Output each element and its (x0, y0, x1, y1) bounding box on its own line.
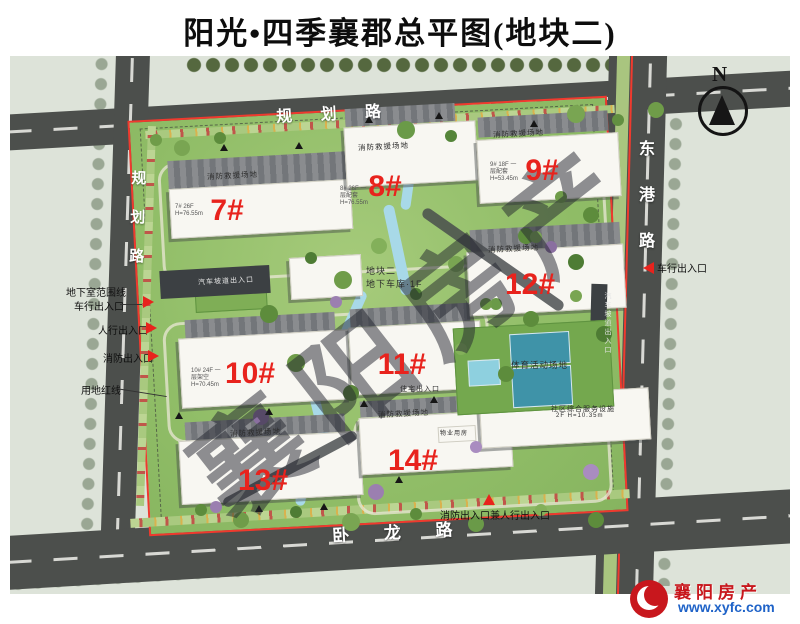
sports-area-label: 体育活动场地 (511, 359, 568, 371)
car-ramp-label: 汽车坡道出入口 (602, 292, 612, 355)
road-label-left: 规划路 (124, 170, 148, 288)
vehicle-entry-label-right: 车行出入口 (657, 260, 707, 275)
pedestrian-entry-arrow-icon (146, 322, 157, 334)
leader-line (120, 304, 142, 305)
property-room-label: 物业用房 (440, 428, 468, 437)
building-label-11: 11# (370, 350, 434, 380)
red-line-label: 用地红线 (81, 382, 121, 397)
parcel-label: 地块二 (366, 264, 396, 277)
building-label-14: 14# (381, 446, 445, 476)
vehicle-entry-arrow-icon (143, 296, 154, 308)
building-label-12: 12# (498, 270, 562, 300)
page-title: 阳光•四季襄郡总平图(地块二) (0, 8, 800, 53)
entrance-marker-icon (395, 476, 403, 483)
fire-entry-arrow-icon (148, 350, 159, 362)
entrance-marker-icon (220, 144, 228, 151)
entrance-marker-icon (320, 503, 328, 510)
entrance-marker-icon (295, 142, 303, 149)
vehicle-entry-arrow-icon (643, 262, 654, 274)
logo-icon-inner (644, 584, 666, 606)
north-arrow-icon (698, 86, 748, 136)
vehicle-entry-label-left: 车行出入口 (74, 298, 124, 313)
building-caption-8: 8# 26F 一层配套 H=76.55m (340, 186, 370, 207)
logo-icon (630, 580, 668, 618)
entrance-marker-icon (365, 116, 373, 123)
tree-cluster (305, 252, 317, 264)
fire-entry-label: 消防出入口 (103, 350, 153, 365)
fire-pedestrian-entry-arrow-icon (483, 494, 495, 505)
fire-pedestrian-entry-label: 消防出入口兼人行出入口 (440, 507, 550, 522)
service-facility-spec: 2F H=10.35m (556, 413, 604, 419)
building-label-13: 13# (231, 466, 295, 496)
site-plan-screenshot: 阳光•四季襄郡总平图(地块二) (0, 0, 800, 624)
residential-entry-label: 住宅出入口 (400, 384, 440, 394)
tree-row (185, 56, 655, 74)
basketball-court (511, 365, 573, 408)
north-label: N (712, 62, 727, 87)
north-arrow-triangle (709, 95, 735, 125)
site-plan-map: 规 划 路 规划路 东港路 卧 龙 路 7# 8# 9# 10# 11# 12#… (10, 56, 790, 594)
garage-label: 地下车库·1F (366, 277, 423, 290)
pedestrian-entry-label: 人行出入口 (98, 322, 148, 337)
basement-line-label: 地下室范围线 (66, 284, 126, 299)
building-label-10: 10# (218, 359, 282, 389)
logo-url: www.xyfc.com (678, 599, 775, 615)
building-caption-9: 9# 18F 一层配套 H=53.45m (490, 162, 520, 183)
site-logo: 襄阳房产 www.xyfc.com (626, 578, 796, 622)
tree-cluster (150, 134, 162, 146)
building-caption-7: 7# 26F H=76.55m (175, 204, 205, 218)
building-caption-10: 10# 24F 一层架空 H=70.45m (191, 368, 221, 389)
entrance-marker-icon (435, 112, 443, 119)
